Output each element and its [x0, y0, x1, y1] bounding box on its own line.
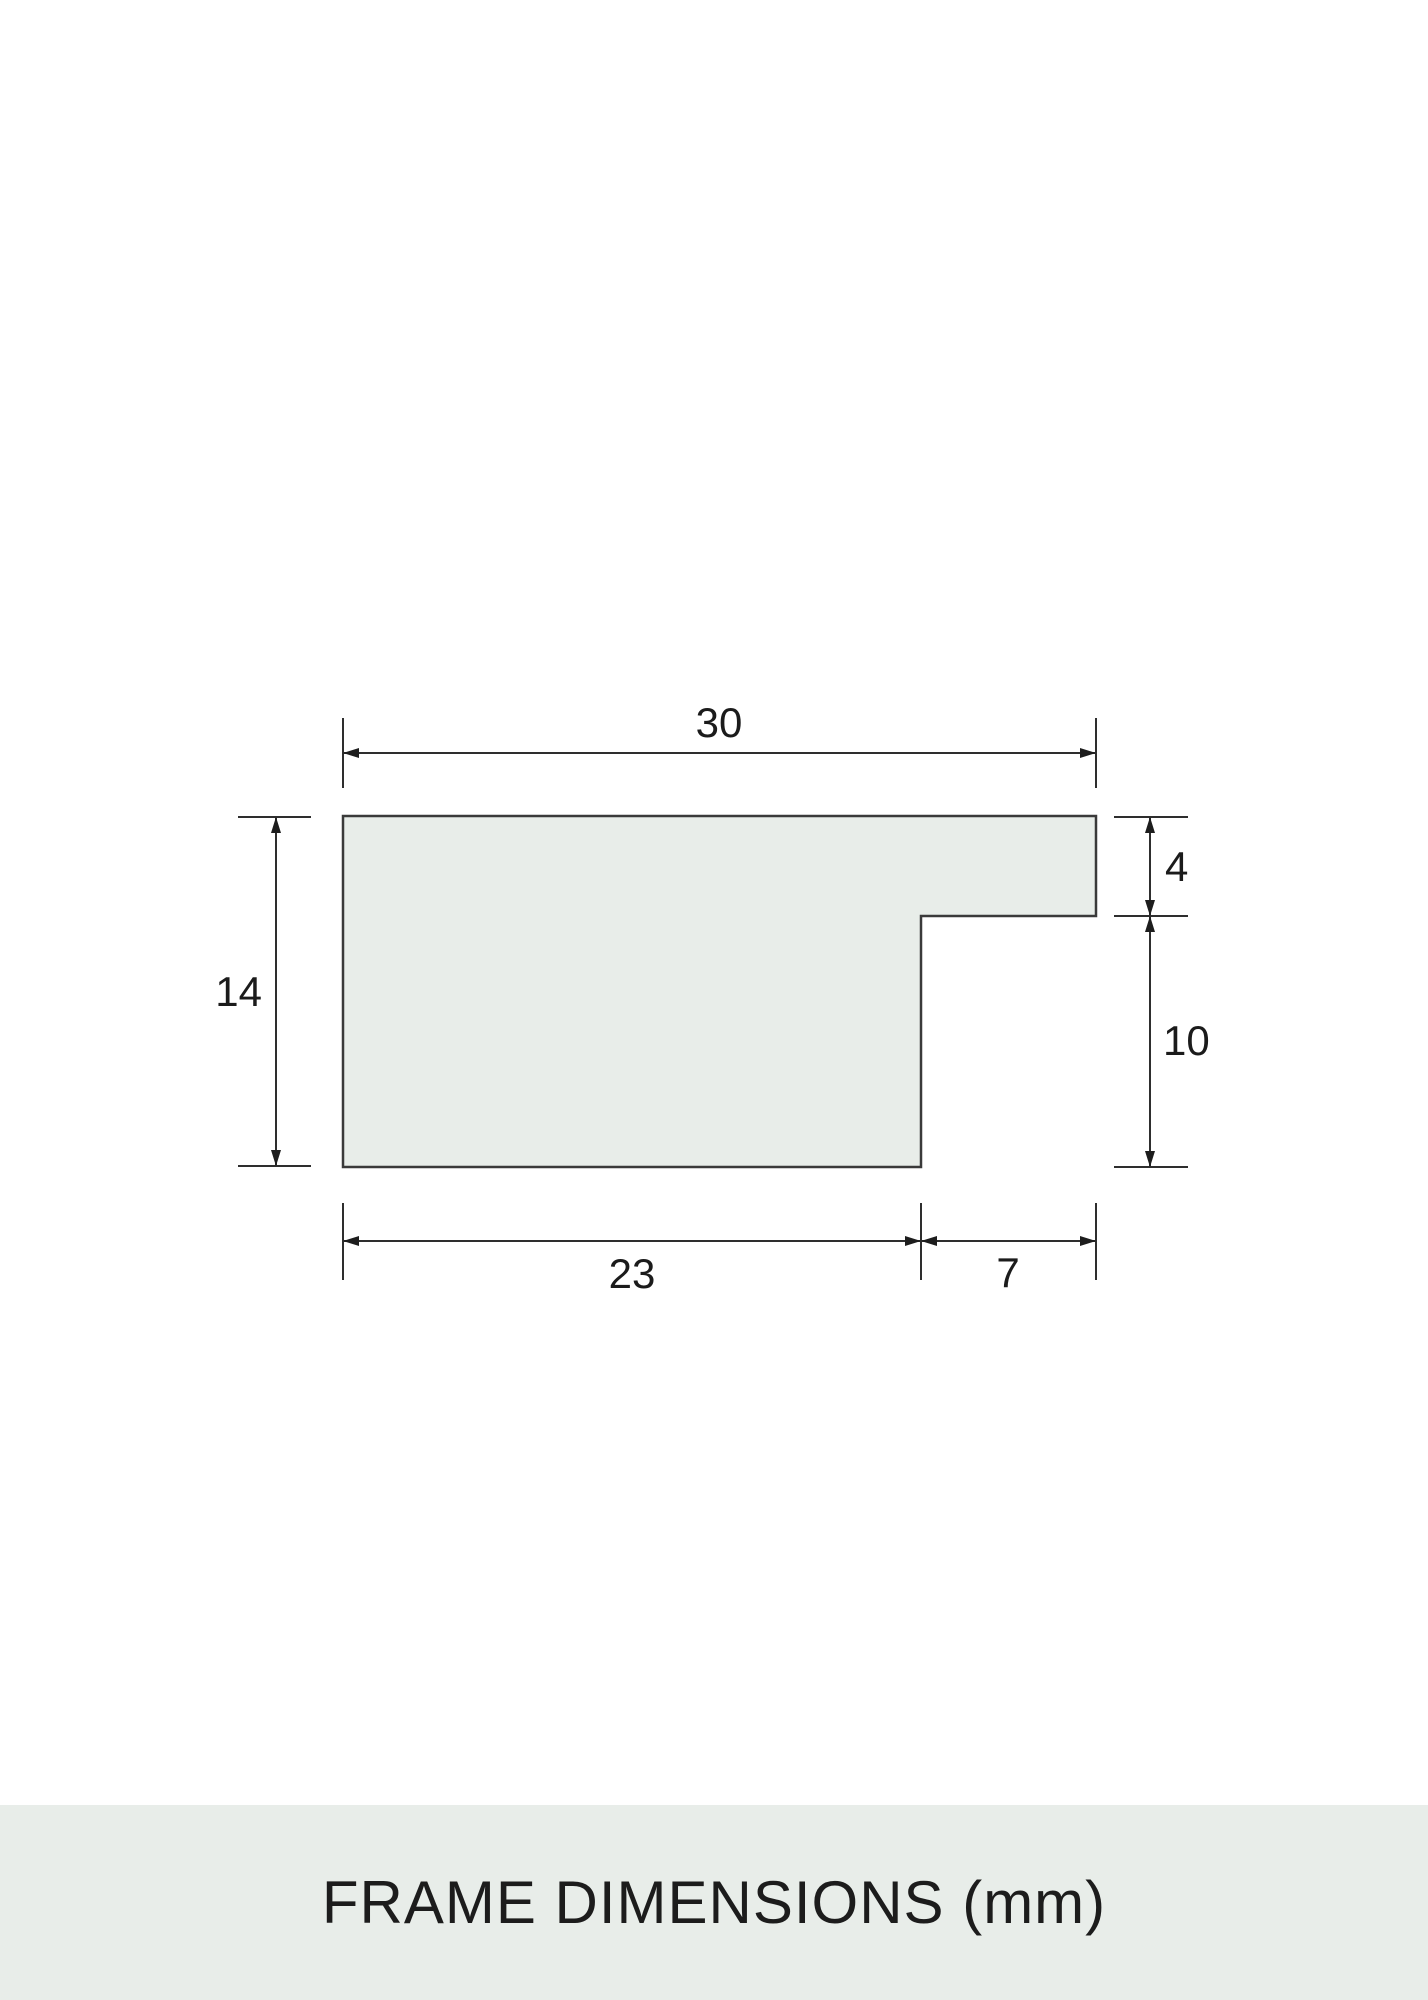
dimension-label-lip-depth: 4 — [1165, 843, 1188, 890]
frame-profile-diagram: 30 14 4 10 23 — [0, 0, 1428, 1805]
dimension-body-width: 23 — [343, 1203, 921, 1297]
diagram-title: FRAME DIMENSIONS (mm) — [322, 1868, 1106, 1937]
dimension-label-rabbet-height: 10 — [1163, 1017, 1210, 1064]
caption-band: FRAME DIMENSIONS (mm) — [0, 1805, 1428, 2000]
dimension-label-body-width: 23 — [609, 1250, 656, 1297]
frame-profile-shape — [343, 816, 1096, 1167]
dimension-label-overall-width: 30 — [696, 699, 743, 746]
dimension-overall-width: 30 — [343, 699, 1096, 788]
dimension-overall-height: 14 — [215, 817, 311, 1166]
dimension-lip-width: 7 — [921, 1203, 1096, 1296]
dimension-lip-depth: 4 — [1114, 817, 1188, 916]
dimension-label-lip-width: 7 — [996, 1249, 1019, 1296]
frame-dimension-diagram-page: 30 14 4 10 23 — [0, 0, 1428, 2000]
dimension-label-overall-height: 14 — [215, 968, 262, 1015]
dimension-rabbet-height: 10 — [1114, 916, 1210, 1167]
